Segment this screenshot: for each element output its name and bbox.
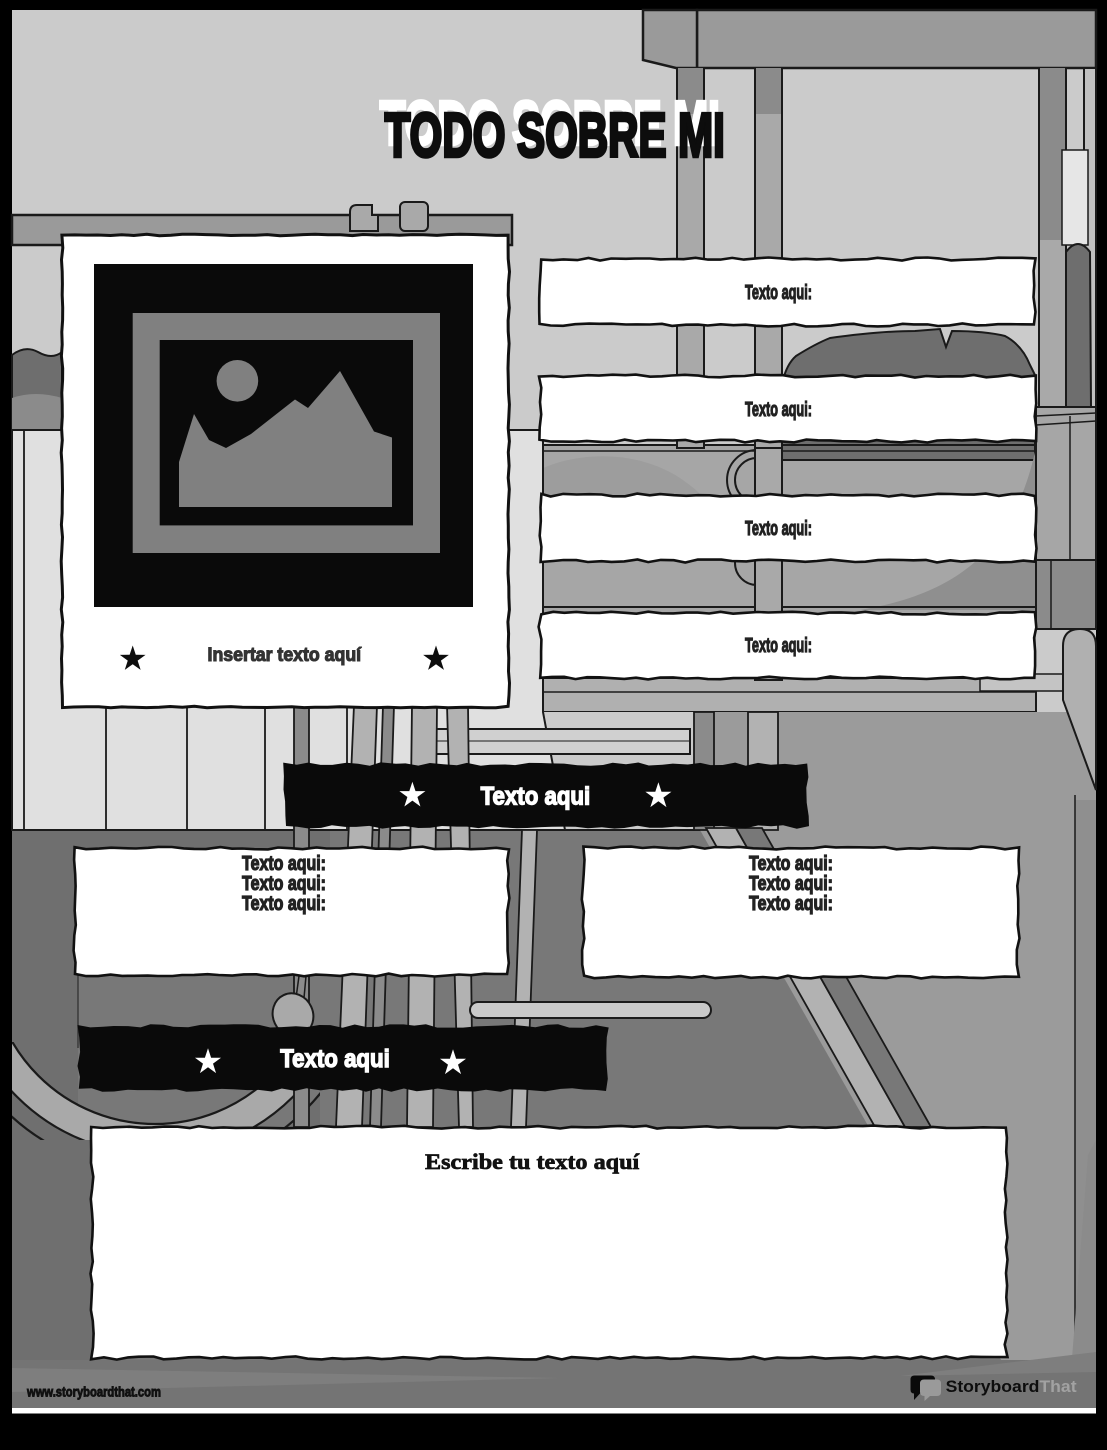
svg-text:Texto aqui:: Texto aqui: (745, 517, 812, 540)
svg-text:Texto aqui:: Texto aqui: (745, 281, 812, 304)
svg-text:Texto aqui:: Texto aqui: (242, 852, 326, 874)
svg-text:Texto aqui: Texto aqui (481, 783, 591, 810)
svg-text:www.storyboardthat.com: www.storyboardthat.com (26, 1385, 161, 1400)
svg-text:StoryboardThat: StoryboardThat (946, 1376, 1077, 1396)
svg-text:Texto aqui:: Texto aqui: (749, 892, 833, 914)
svg-text:Texto aqui:: Texto aqui: (242, 872, 326, 894)
svg-text:Texto aqui:: Texto aqui: (745, 634, 812, 657)
svg-text:TODO SOBRE MI: TODO SOBRE MI (385, 102, 725, 171)
svg-text:Insertar texto aquí: Insertar texto aquí (208, 643, 362, 665)
svg-text:Texto aqui: Texto aqui (280, 1046, 390, 1073)
svg-text:Texto aqui:: Texto aqui: (745, 398, 812, 421)
svg-text:Texto aqui:: Texto aqui: (749, 852, 833, 874)
svg-text:Texto aqui:: Texto aqui: (749, 872, 833, 894)
svg-text:Escribe tu texto aquí: Escribe tu texto aquí (425, 1150, 640, 1175)
svg-text:Texto aqui:: Texto aqui: (242, 892, 326, 914)
